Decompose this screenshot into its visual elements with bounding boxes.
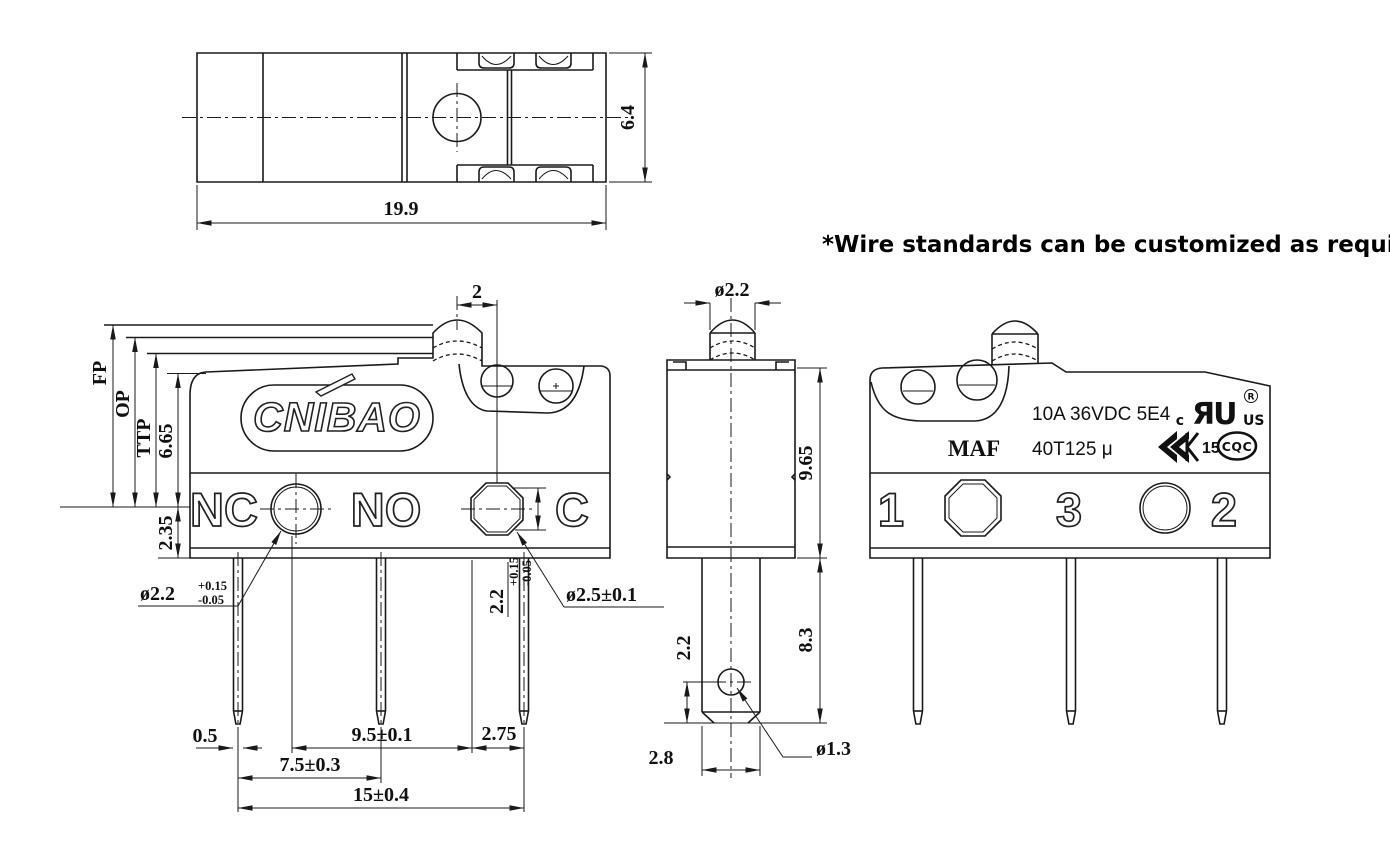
dim-c-hole-tol-minus: -0.05	[520, 560, 534, 586]
callout-c-dia: ø2.5±0.1	[566, 584, 637, 606]
label-nc: NC	[190, 483, 258, 536]
dim-end-body-height: 9.65	[795, 446, 817, 481]
back-view: MAF 10A 36VDC 5E4 40T125 μ c ЯU US R 15 …	[870, 321, 1270, 724]
screw-pocket	[871, 366, 1009, 421]
dim-pin-width: 0.5	[193, 725, 218, 747]
rating-line1: 10A 36VDC 5E4	[1032, 404, 1171, 425]
dim-terminal-width: 2.8	[649, 747, 674, 769]
dim-pin-pitch-near: 7.5±0.3	[280, 754, 341, 776]
end-view: ø2.2 9.65 8.3 2.2 ø1.3 2.8	[649, 279, 852, 778]
dim-pin-pitch-far: 15±0.4	[353, 784, 409, 806]
front-view-pins	[234, 552, 529, 736]
terminal-2: 2	[1211, 483, 1237, 536]
callout-terminal-hole-dia: ø1.3	[816, 738, 851, 760]
rating-line2: 40T125 μ	[1032, 439, 1113, 460]
dim-hole-pitch: 9.5±0.1	[352, 724, 413, 746]
terminal-3: 3	[1056, 483, 1082, 536]
dim-c-hole-tol-plus: +0.15	[507, 557, 521, 586]
dim-base-height: 2.35	[155, 516, 177, 551]
wire-standards-note: *Wire standards can be customized as req…	[822, 232, 1390, 258]
ul-us-label: US	[1243, 413, 1264, 429]
dim-plunger-dia: ø2.2	[715, 279, 750, 301]
ul-registered-label: R	[1248, 393, 1255, 403]
cqc-label: CQC	[1222, 439, 1252, 454]
dim-body-height: 6.65	[155, 424, 177, 459]
label-c: C	[555, 483, 589, 536]
dim-hole-to-pin: 2.75	[482, 723, 517, 745]
dim-top-width: 6.4	[617, 105, 639, 130]
dim-hole-offset: 2.2	[673, 636, 695, 661]
dim-terminal-length: 8.3	[795, 628, 817, 653]
dim-op: OP	[112, 390, 134, 418]
cqc-mark-icon: CQC	[1218, 433, 1256, 460]
brand-logo: CNIBAO	[253, 394, 421, 440]
technical-drawing-page: 19.9 6.4 CNIBAO NC NO C	[0, 0, 1390, 863]
enec-mark-icon	[1158, 431, 1198, 463]
dim-plunger-offset: 2	[472, 281, 482, 303]
ul-glyph: ЯU	[1192, 397, 1235, 432]
callout-nc-dia: ø2.2	[140, 583, 175, 605]
callout-nc-tol-minus: -0.05	[198, 593, 224, 607]
dim-c-hole-height: 2.2	[486, 589, 508, 614]
ul-c-label: c	[1176, 413, 1184, 429]
back-view-pins	[914, 558, 1227, 724]
ul-recognized-mark-icon: c ЯU US R	[1176, 390, 1265, 433]
model-name: MAF	[948, 436, 1000, 461]
callout-nc-tol-plus: +0.15	[198, 579, 227, 593]
terminal-1: 1	[878, 483, 904, 536]
label-no: NO	[351, 483, 422, 536]
front-view: CNIBAO NC NO C	[60, 281, 664, 812]
dim-fp: FP	[89, 361, 111, 385]
dim-top-length: 19.9	[384, 198, 419, 220]
dim-ttp: TTP	[133, 419, 155, 458]
top-view: 19.9 6.4	[182, 53, 652, 230]
